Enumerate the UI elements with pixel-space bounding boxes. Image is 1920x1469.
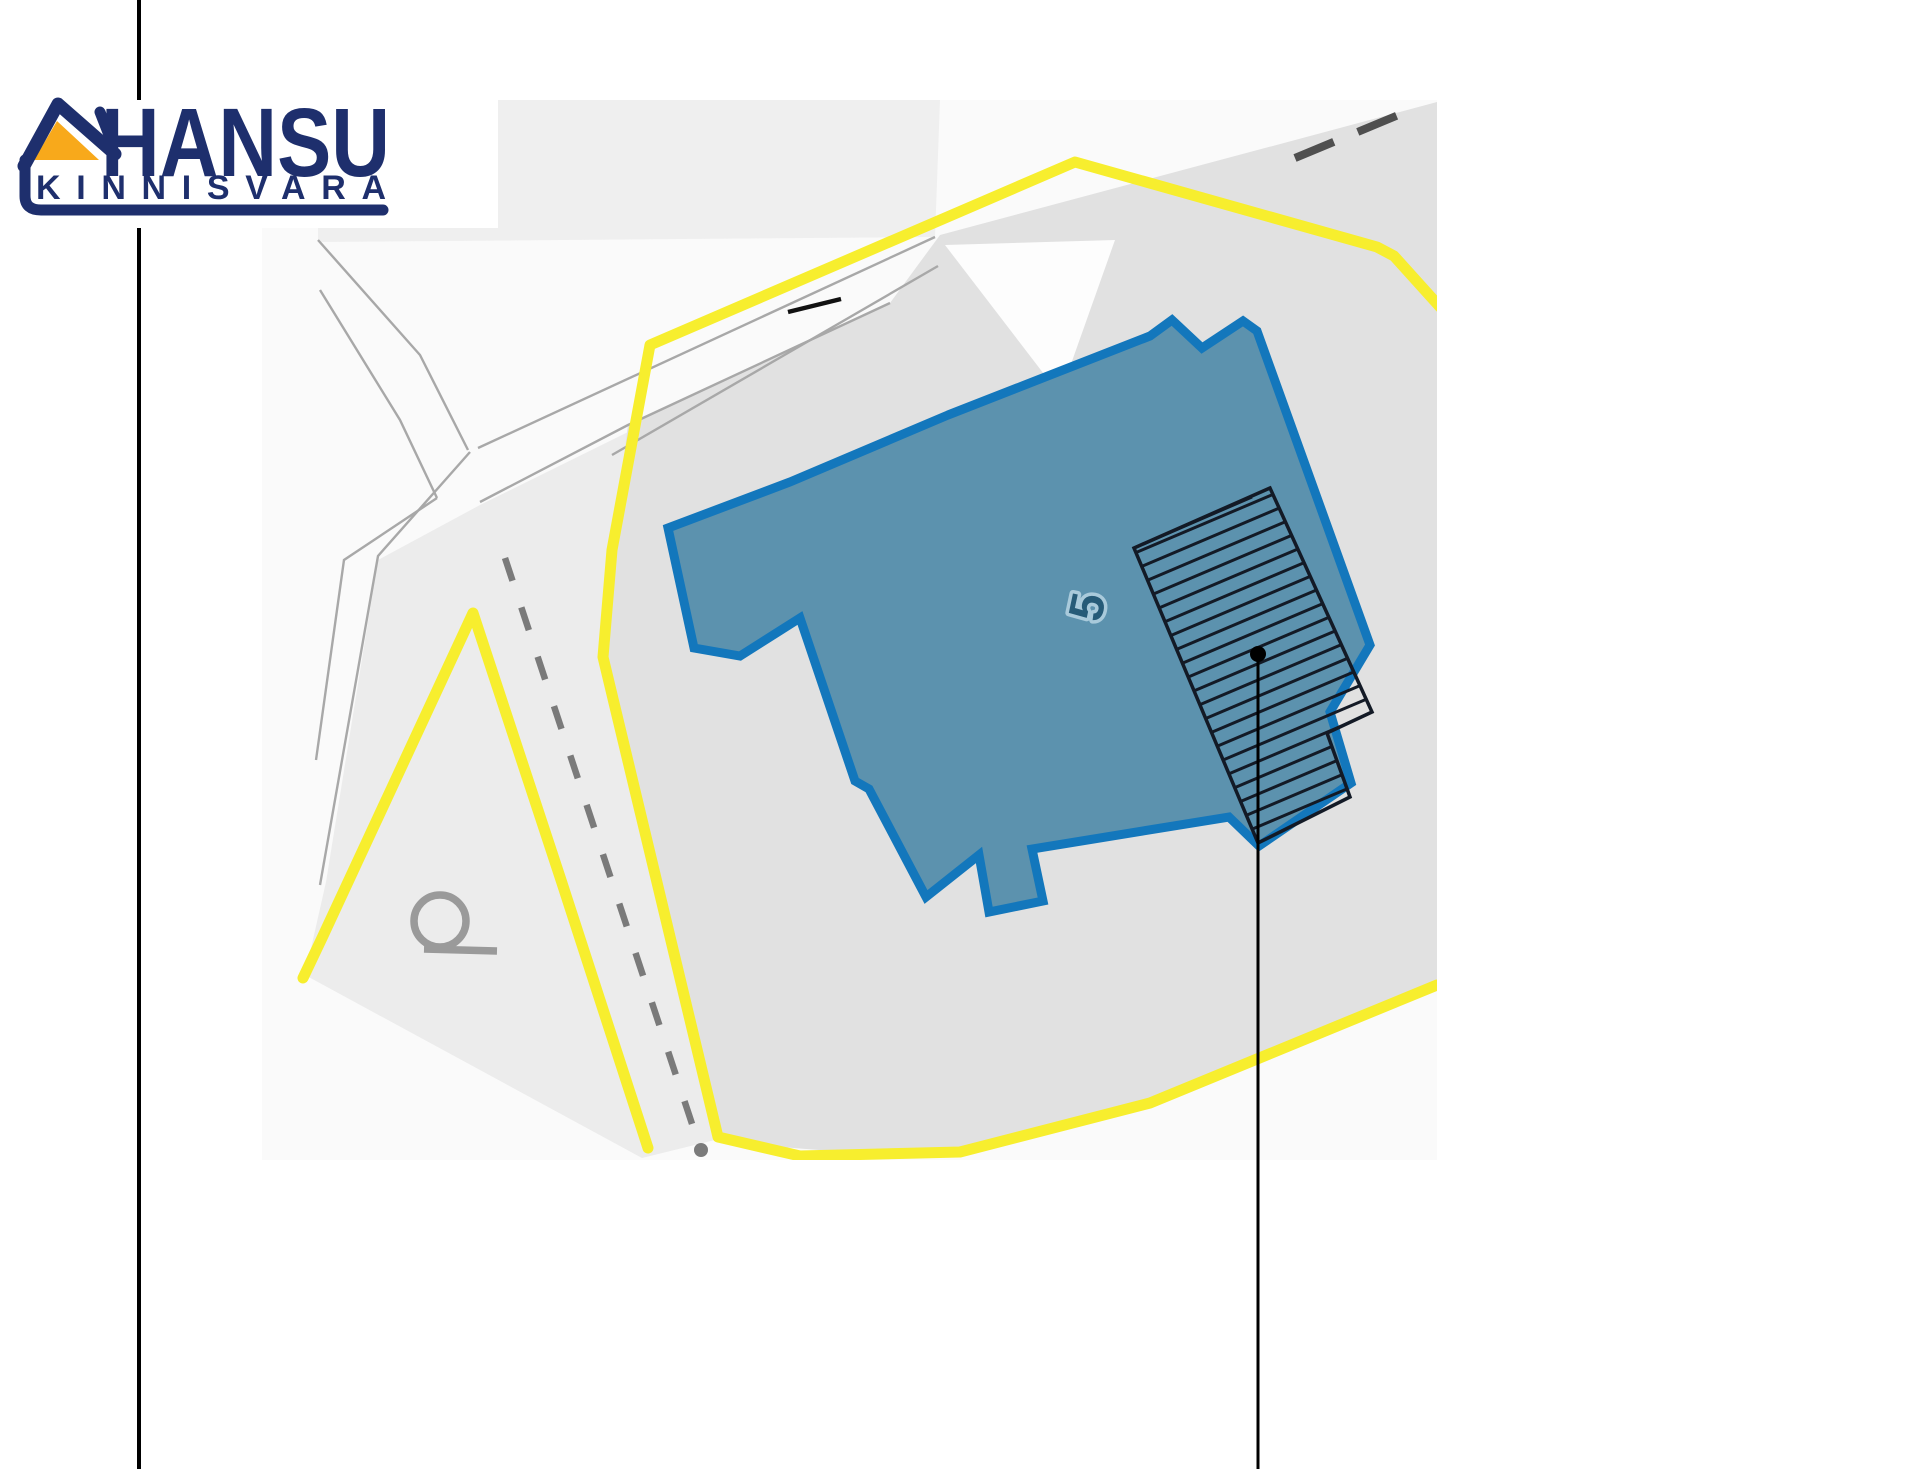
site-plan-map: 5 <box>262 100 1440 1160</box>
q-glyph-tail <box>424 949 497 951</box>
logo: HANSU KINNISVARA <box>0 88 498 228</box>
footpath-end-dot <box>694 1143 708 1157</box>
property-site-plan-page: 5 HANSU KINNISVARA <box>0 0 1920 1469</box>
